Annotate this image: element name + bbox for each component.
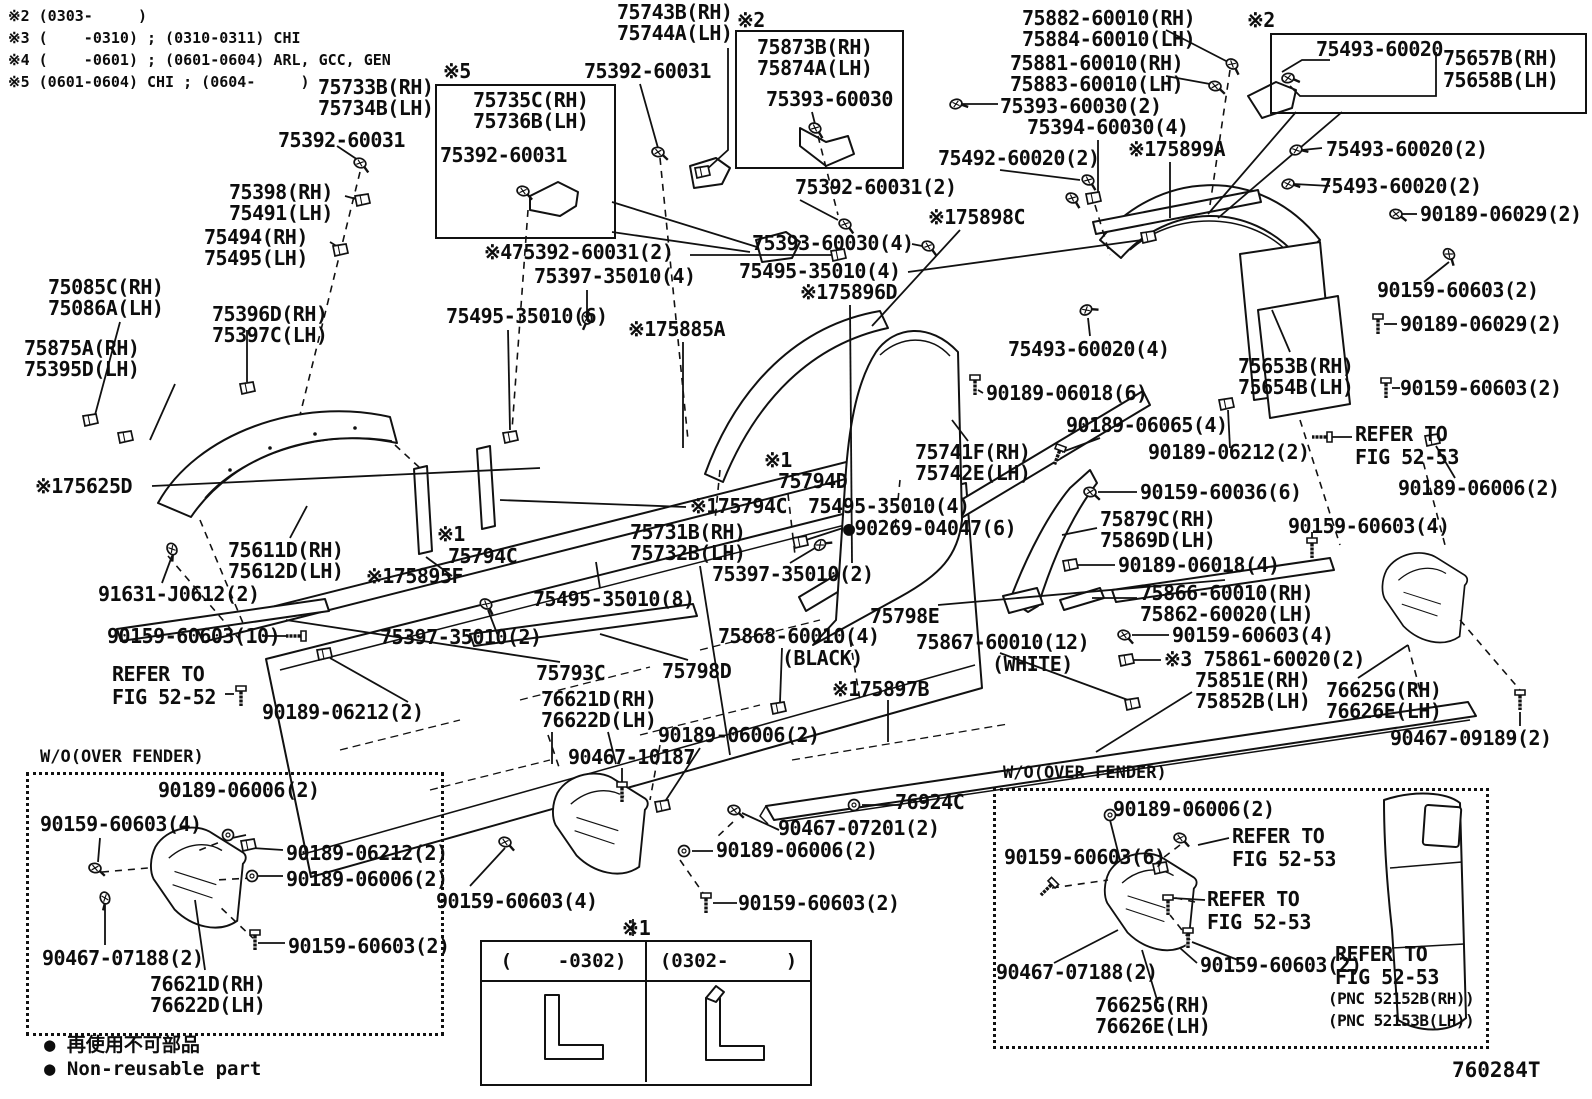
part-label: REFER TO: [1335, 944, 1427, 964]
legend-nonreusable-en: ● Non-reusable part: [44, 1058, 261, 1080]
part-label: 90189-06212(2): [1148, 442, 1310, 462]
part-label: ※2: [737, 10, 765, 30]
part-label: 76621D(RH): [150, 974, 265, 994]
part-label: 75731B(RH): [630, 522, 745, 542]
part-label: 75743B(RH): [617, 2, 732, 22]
part-label: ※175794C: [690, 496, 787, 516]
part-label: 90159-60603(4): [1172, 625, 1334, 645]
part-label: 76626E(LH): [1095, 1016, 1210, 1036]
part-label: 75875A(RH): [24, 338, 139, 358]
note-line: ※2 (0303- ): [8, 7, 147, 25]
toyota-parts-diagram: ※2 (0303- ) ※3 ( -0310) ; (0310-0311) CH…: [0, 0, 1592, 1099]
part-label: 90189-06006(2): [1113, 799, 1275, 819]
part-label: 75493-60020: [1316, 39, 1443, 59]
part-label: 75744A(LH): [617, 23, 732, 43]
part-label: 90159-60603(4): [1288, 516, 1450, 536]
part-label: 75736B(LH): [473, 111, 588, 131]
part-label: 90189-06006(2): [716, 840, 878, 860]
table-cell-early-bracket: [482, 982, 647, 1082]
table-column-header: ( -0302): [482, 942, 647, 980]
part-label: 90189-06065(4): [1066, 415, 1228, 435]
note-line: ※4 ( -0601) ; (0601-0604) ARL, GCC, GEN: [8, 51, 391, 69]
part-label: ※175898C: [928, 207, 1025, 227]
part-label: 75867-60010(12): [916, 632, 1089, 652]
part-label: ※175895F: [366, 566, 463, 586]
note-line: ※5 (0601-0604) CHI ; (0604- ): [8, 73, 310, 91]
part-label: 75794D: [778, 471, 847, 491]
part-label: 76622D(LH): [150, 995, 265, 1015]
figure-code: 760284T: [1452, 1058, 1541, 1082]
part-label: ※3 75861-60020(2): [1164, 649, 1365, 669]
part-label: 75883-60010(LH): [1010, 74, 1183, 94]
part-label: 75874A(LH): [757, 58, 872, 78]
part-label: 75851E(RH): [1195, 670, 1310, 690]
table-note: ※1: [622, 916, 651, 940]
part-label: 90467-07188(2): [996, 962, 1158, 982]
legend-nonreusable-jp: ● 再使用不可部品: [44, 1030, 200, 1057]
part-label: 90467-07201(2): [778, 818, 940, 838]
part-label: 75397-35010(4): [534, 266, 696, 286]
part-label: 90189-06006(2): [658, 725, 820, 745]
part-label: 90189-06006(2): [158, 780, 320, 800]
part-label: 75884-60010(LH): [1022, 29, 1195, 49]
part-label: 75798E: [870, 606, 939, 626]
part-label: 75742E(LH): [915, 463, 1030, 483]
part-label: 76625G(RH): [1095, 995, 1210, 1015]
part-label: 90467-07188(2): [42, 948, 204, 968]
part-label: 75869D(LH): [1100, 530, 1215, 550]
part-label: 75495-35010(4): [808, 496, 970, 516]
part-label: 75735C(RH): [473, 90, 588, 110]
part-label: REFER TO: [1207, 889, 1299, 909]
part-label: ※1: [764, 450, 792, 470]
part-label: 75495(LH): [204, 248, 308, 268]
part-label: ※175896D: [800, 282, 897, 302]
part-label: 75392-60031: [440, 145, 567, 165]
part-label: FIG 52-53: [1355, 447, 1459, 467]
variant-table: ( -0302) (0302- ): [480, 940, 812, 1086]
part-label: 90189-06006(2): [286, 869, 448, 889]
part-label: 75393-60030(4): [752, 233, 914, 253]
part-label: (PNC 52153B(LH)): [1328, 1013, 1474, 1029]
part-label: 75793C: [536, 663, 605, 683]
part-label: 75741F(RH): [915, 442, 1030, 462]
part-label: 76924C: [895, 792, 964, 812]
part-label: ※475392-60031(2): [484, 242, 673, 262]
part-label: 75794C: [448, 546, 517, 566]
part-label: 90189-06029(2): [1420, 204, 1582, 224]
inset-title-right: W/O(OVER FENDER): [1003, 763, 1167, 783]
part-label: ※175897B: [832, 679, 929, 699]
part-label: REFER TO: [1232, 826, 1324, 846]
part-label: (PNC 52152B(RH)): [1328, 991, 1474, 1007]
part-label: FIG 52-53: [1207, 912, 1311, 932]
part-label: 75733B(RH): [318, 77, 433, 97]
part-label: 75394-60030(4): [1027, 117, 1189, 137]
part-label: 75734B(LH): [318, 98, 433, 118]
part-label: 75398(RH): [229, 182, 333, 202]
part-label: 90189-06212(2): [286, 843, 448, 863]
part-label: 75495-35010(8): [533, 589, 695, 609]
part-label: 90189-06018(4): [1118, 555, 1280, 575]
part-label: 75397-35010(2): [712, 564, 874, 584]
part-label: 75493-60020(2): [1326, 139, 1488, 159]
part-label: 75612D(LH): [228, 561, 343, 581]
part-label: 75392-60031(2): [795, 177, 957, 197]
part-label: 90189-06029(2): [1400, 314, 1562, 334]
part-label: 75492-60020(2): [938, 148, 1100, 168]
part-label: 76625G(RH): [1326, 680, 1441, 700]
part-label: 90159-60603(4): [40, 814, 202, 834]
part-label: 75085C(RH): [48, 277, 163, 297]
part-label: 90159-60603(2): [1377, 280, 1539, 300]
part-label: 75657B(RH): [1443, 48, 1558, 68]
part-label: 90467-10187: [568, 747, 695, 767]
part-label: ※175885A: [628, 319, 725, 339]
part-label: REFER TO: [112, 664, 204, 684]
part-label: 76626E(LH): [1326, 701, 1441, 721]
part-label: 90159-60603(2): [1400, 378, 1562, 398]
part-label: 75395D(LH): [24, 359, 139, 379]
part-label: 90159-60603(10): [107, 626, 280, 646]
part-label: 75397-35010(2): [380, 627, 542, 647]
part-label: FIG 52-52: [112, 687, 216, 707]
part-label: 75879C(RH): [1100, 509, 1215, 529]
part-label: 75493-60020(2): [1320, 176, 1482, 196]
part-label: 75495-35010(6): [446, 306, 608, 326]
part-label: 75732B(LH): [630, 543, 745, 563]
part-label: 75392-60031: [278, 130, 405, 150]
note-line: ※3 ( -0310) ; (0310-0311) CHI: [8, 29, 301, 47]
part-label: 75653B(RH): [1238, 356, 1353, 376]
part-label: (WHITE): [992, 654, 1073, 674]
part-label: 90189-06212(2): [262, 702, 424, 722]
part-label: FIG 52-53: [1232, 849, 1336, 869]
inset-title-left: W/O(OVER FENDER): [40, 747, 204, 767]
part-label: REFER TO: [1355, 424, 1447, 444]
part-label: ※175899A: [1128, 139, 1225, 159]
part-label: ※175625D: [35, 476, 132, 496]
part-label: ※1: [437, 524, 465, 544]
part-label: 75881-60010(RH): [1010, 53, 1183, 73]
part-label: 90159-60603(2): [738, 893, 900, 913]
part-label: 90159-60603(2): [288, 936, 450, 956]
part-label: 75393-60030: [766, 89, 893, 109]
part-label: 75658B(LH): [1443, 70, 1558, 90]
part-label: 75392-60031: [584, 61, 711, 81]
part-label: 76622D(LH): [541, 710, 656, 730]
part-label: 75494(RH): [204, 227, 308, 247]
part-label: 75397C(LH): [212, 325, 327, 345]
part-label: 90159-60036(6): [1140, 482, 1302, 502]
part-label: 90189-06006(2): [1398, 478, 1560, 498]
part-label: 75882-60010(RH): [1022, 8, 1195, 28]
part-label: FIG 52-53: [1335, 967, 1439, 987]
part-label: 76621D(RH): [541, 689, 656, 709]
part-label: 75868-60010(4): [718, 626, 880, 646]
part-label: 75873B(RH): [757, 37, 872, 57]
part-label: 75852B(LH): [1195, 691, 1310, 711]
table-column-header: (0302- ): [647, 942, 810, 980]
part-label: 75393-60030(2): [1000, 96, 1162, 116]
part-label: 75396D(RH): [212, 304, 327, 324]
part-label: 75611D(RH): [228, 540, 343, 560]
part-label: 90159-60603(6): [1004, 847, 1166, 867]
part-label: 75654B(LH): [1238, 377, 1353, 397]
part-label: 90189-06018(6): [986, 383, 1148, 403]
part-label: 75866-60010(RH): [1140, 583, 1313, 603]
part-label: 75086A(LH): [48, 298, 163, 318]
part-label: 90159-60603(4): [436, 891, 598, 911]
part-label: 91631-J0612(2): [98, 584, 260, 604]
part-label: 75798D: [662, 661, 731, 681]
part-label: ●90269-04047(6): [843, 518, 1016, 538]
part-label: (BLACK): [782, 648, 863, 668]
part-label: 75493-60020(4): [1008, 339, 1170, 359]
part-label: ※2: [1247, 10, 1275, 30]
part-label: 75495-35010(4): [739, 261, 901, 281]
part-label: 90467-09189(2): [1390, 728, 1552, 748]
part-label: ※5: [443, 61, 471, 81]
table-cell-late-bracket: [647, 982, 810, 1082]
part-label: 75862-60020(LH): [1140, 604, 1313, 624]
part-label: 75491(LH): [229, 203, 333, 223]
